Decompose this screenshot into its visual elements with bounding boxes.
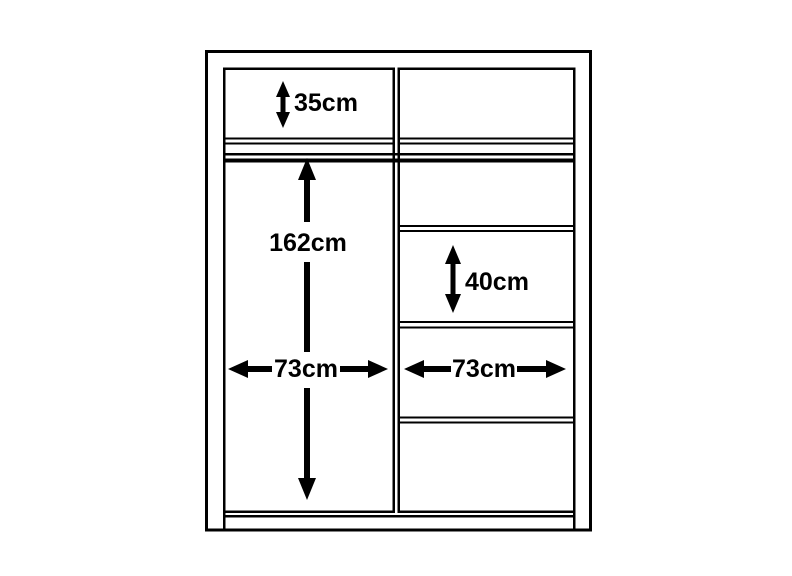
wardrobe-diagram: 35cm 162cm 73cm 40cm xyxy=(0,0,792,576)
dimension-arrow-shelf-height xyxy=(445,245,461,313)
arrow-down-head-35cm xyxy=(276,112,290,128)
label-right-section-width: 73cm xyxy=(452,355,516,383)
label-left-section-width: 73cm xyxy=(274,355,338,383)
label-hanging-section-height: 162cm xyxy=(269,229,347,257)
arrow-left-head-73cm-left xyxy=(228,360,248,378)
arrow-down-head-40cm xyxy=(445,294,461,313)
arrow-down-head-162cm xyxy=(298,478,316,500)
dimension-arrow-top-height xyxy=(276,81,290,128)
arrow-left-head-73cm-right xyxy=(404,360,424,378)
arrow-right-head-73cm-left xyxy=(368,360,388,378)
dimension-arrow-hanging-height xyxy=(298,158,316,500)
label-middle-shelf-height: 40cm xyxy=(465,268,529,296)
arrow-right-head-73cm-right xyxy=(546,360,566,378)
label-top-section-height: 35cm xyxy=(294,89,358,117)
